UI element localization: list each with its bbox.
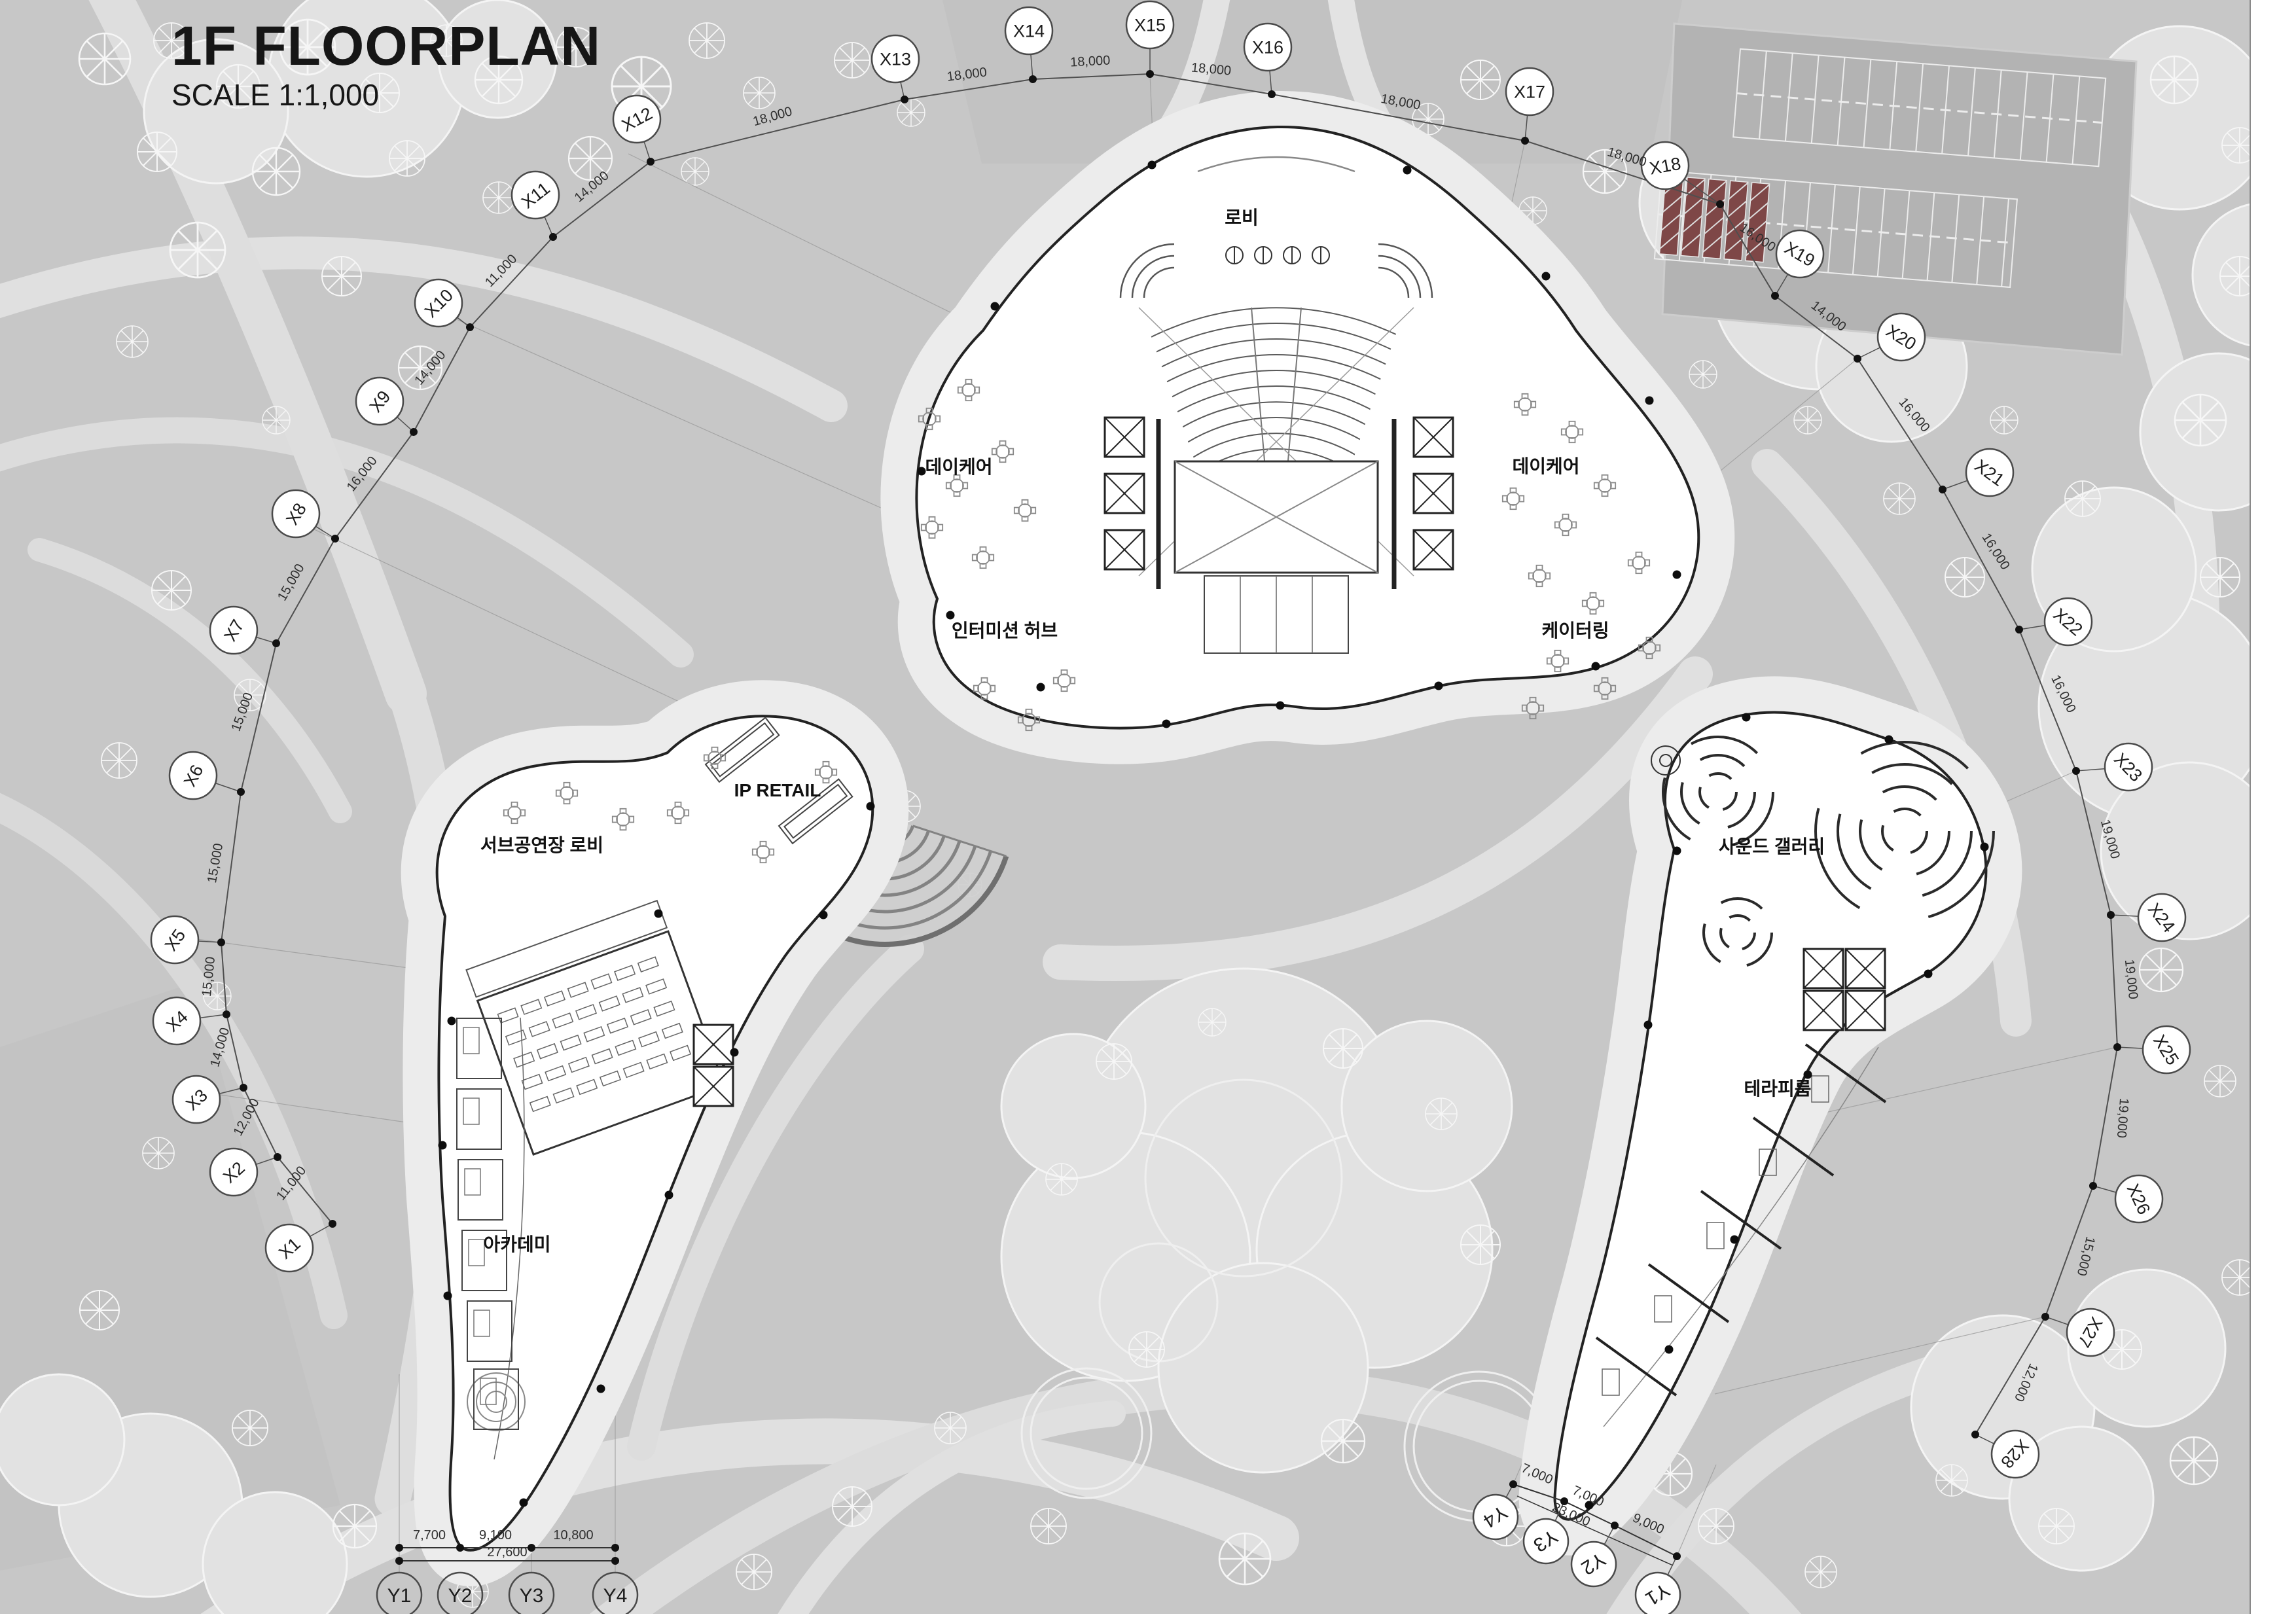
- grid-dot: [466, 323, 474, 331]
- x-grid-bubble: X9: [356, 378, 403, 425]
- x-grid-bubble: X18: [1641, 142, 1689, 189]
- grid-dot: [2072, 767, 2080, 775]
- svg-text:X13: X13: [880, 50, 911, 69]
- grid-dot: [274, 1153, 281, 1161]
- x-grid-bubble: X3: [173, 1076, 220, 1123]
- x-grid-bubble: X15: [1126, 1, 1174, 48]
- grid-dot: [237, 788, 245, 796]
- grid-dot: [1716, 200, 1724, 208]
- grid-dot: [647, 158, 655, 166]
- x-grid-bubble: X14: [1005, 7, 1052, 54]
- svg-text:Y4: Y4: [603, 1585, 628, 1607]
- grid-dot: [2113, 1043, 2121, 1051]
- x-grid-bubble: X24: [2138, 894, 2185, 941]
- x-grid-bubble: X2: [210, 1149, 257, 1196]
- svg-text:Y2: Y2: [448, 1585, 473, 1607]
- x-grid-bubble: X12: [613, 96, 660, 143]
- floorplan-sheet: X1X2X3X4X5X6X7X8X9X10X11X12X13X14X15X16X…: [0, 0, 2296, 1623]
- svg-text:X14: X14: [1013, 22, 1045, 41]
- y-grid-bubble: Y2: [1571, 1542, 1616, 1586]
- dim-label: 18,000: [1070, 53, 1111, 69]
- grid-dot: [1268, 90, 1276, 98]
- floorplan-drawing: X1X2X3X4X5X6X7X8X9X10X11X12X13X14X15X16X…: [0, 0, 2296, 1623]
- parking-area: [1655, 24, 2136, 355]
- x-grid-bubble: X5: [151, 916, 198, 963]
- grid-dot: [2089, 1182, 2097, 1190]
- x-grid-bubble: X6: [170, 752, 217, 799]
- grid-dot: [410, 428, 418, 436]
- grid-dot: [1521, 137, 1529, 145]
- y-grid-bubble: Y4: [1473, 1495, 1518, 1539]
- x-grid-bubble: X10: [415, 279, 462, 327]
- svg-text:X16: X16: [1252, 38, 1283, 58]
- x-grid-bubble: X19: [1776, 230, 1823, 277]
- x-grid-bubble: X28: [1992, 1431, 2039, 1478]
- grid-dot: [272, 639, 280, 647]
- dim-label: 9,100: [479, 1528, 512, 1543]
- page-title: 1F FLOORPLAN: [171, 17, 601, 75]
- grid-dot: [1971, 1431, 1979, 1438]
- y-grid-bubble: Y3: [1524, 1519, 1568, 1563]
- x-grid-bubble: X20: [1878, 313, 1925, 361]
- dim-label: 19,000: [2114, 1097, 2131, 1139]
- x-grid-bubble: X27: [2067, 1309, 2114, 1356]
- x-grid-bubble: X13: [872, 35, 919, 82]
- grid-dot: [1771, 292, 1779, 300]
- grid-dot: [2015, 626, 2023, 633]
- x-grid-bubble: X8: [272, 490, 319, 537]
- grid-dot: [329, 1220, 336, 1228]
- grid-dot: [549, 233, 557, 241]
- x-grid-bubble: X21: [1966, 449, 2013, 496]
- x-grid-bubble: X23: [2105, 743, 2152, 791]
- title-block: 1F FLOORPLAN SCALE 1:1,000: [171, 17, 601, 113]
- grid-dot: [331, 535, 339, 543]
- grid-dot: [1029, 75, 1037, 83]
- x-grid-bubble: X1: [266, 1224, 313, 1272]
- grid-dot: [901, 96, 908, 103]
- svg-text:X15: X15: [1134, 16, 1166, 35]
- dim-label: 27,600: [487, 1545, 527, 1560]
- scale-label: SCALE 1:1,000: [171, 77, 601, 113]
- grid-dot: [223, 1010, 230, 1018]
- x-grid-bubble: X25: [2143, 1026, 2190, 1073]
- svg-text:X17: X17: [1514, 82, 1545, 102]
- x-grid-bubble: X17: [1506, 68, 1553, 115]
- x-grid-bubble: X4: [153, 997, 200, 1044]
- dim-label: 7,700: [413, 1528, 446, 1543]
- grid-dot: [2107, 911, 2115, 919]
- grid-dot: [1146, 70, 1154, 78]
- y-grid-bubble: Y1: [1636, 1573, 1680, 1617]
- grid-dot: [1854, 355, 1861, 363]
- x-grid-bubble: X22: [2045, 598, 2092, 645]
- grid-dot: [2041, 1313, 2049, 1321]
- grid-dot: [240, 1084, 247, 1092]
- x-grid-bubble: X11: [512, 171, 559, 219]
- dim-label: 10,800: [553, 1528, 593, 1543]
- grid-dot: [1939, 486, 1946, 493]
- x-grid-bubble: X26: [2115, 1175, 2162, 1222]
- svg-text:Y3: Y3: [520, 1585, 544, 1607]
- grid-dot: [217, 938, 225, 946]
- x-grid-bubble: X7: [210, 607, 257, 654]
- svg-text:Y1: Y1: [387, 1585, 412, 1607]
- x-grid-bubble: X16: [1244, 24, 1291, 71]
